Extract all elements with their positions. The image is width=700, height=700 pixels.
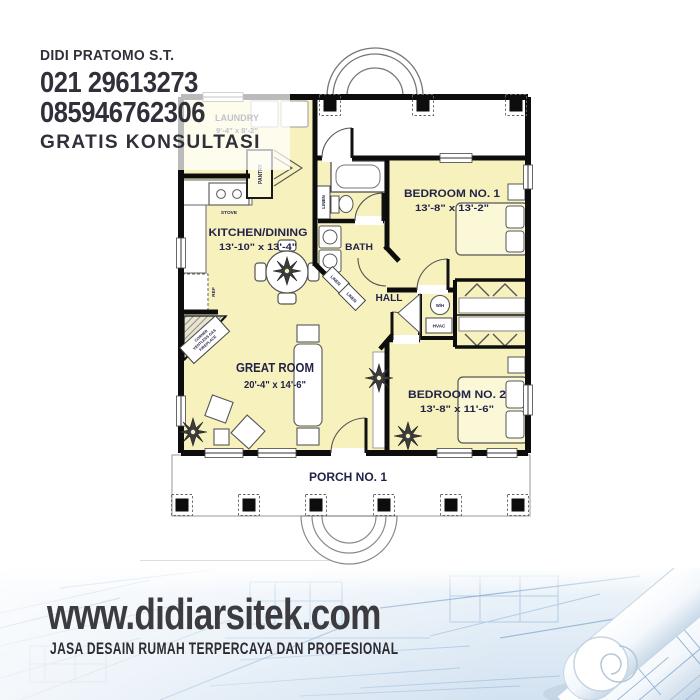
fixture-label-wh: W/H xyxy=(436,303,444,308)
room-label-porch: PORCH NO. 1 xyxy=(309,472,388,484)
room-dims-greatroom: 20'-4" x 14'-6" xyxy=(244,380,306,391)
fixture-label-stove: STOVE xyxy=(221,210,238,216)
phone-number-1: 021 29613273 xyxy=(40,69,198,98)
toilet-icon xyxy=(331,196,353,214)
plant-icon xyxy=(179,418,207,446)
plant-icon xyxy=(394,422,422,450)
fixture-label-hvac: HVAC xyxy=(433,324,446,329)
free-consultation-text: GRATIS KONSULTASI xyxy=(40,133,261,153)
fixture-label-ref: REF xyxy=(211,287,217,297)
stove-icon xyxy=(209,183,249,205)
front-arch-top xyxy=(327,48,423,96)
refrigerator-icon xyxy=(182,274,208,310)
banner: www.didiarsitek.com JASA DESAIN RUMAH TE… xyxy=(0,568,700,700)
advertisement-page: { "contact": { "name": "DIDI PRATOMO S.T… xyxy=(0,0,700,700)
website-url: www.didiarsitek.com xyxy=(47,593,381,637)
phone-number-2: 085946762306 xyxy=(40,99,205,128)
contact-block: DIDI PRATOMO S.T. 021 29613273 085946762… xyxy=(22,36,290,170)
bathtub-icon xyxy=(331,161,385,192)
room-label-bedroom1: BEDROOM NO. 1 xyxy=(404,188,500,200)
porch-slab xyxy=(172,455,530,516)
room-label-bedroom2: BEDROOM NO. 2 xyxy=(408,389,506,401)
room-label-bath: BATH xyxy=(345,242,373,253)
plant-icon xyxy=(273,257,301,285)
architect-name: DIDI PRATOMO S.T. xyxy=(40,49,174,64)
plant-icon xyxy=(365,364,393,392)
banner-tagline: JASA DESAIN RUMAH TERPERCAYA DAN PROFESI… xyxy=(50,640,398,657)
room-dims-bedroom2: 13'-8" x 11'-6" xyxy=(420,404,494,414)
room-label-kitchen: KITCHEN/DINING xyxy=(209,227,308,239)
fixture-label-linen-1: LINEN xyxy=(321,195,326,209)
room-dims-bedroom1: 13'-8" x 13'-2" xyxy=(415,203,489,213)
room-label-greatroom: GREAT ROOM xyxy=(236,361,314,375)
entry-steps-arc xyxy=(301,516,397,564)
room-label-hall: HALL xyxy=(376,292,404,304)
room-dims-kitchen: 13'-10" x 13'-4" xyxy=(219,242,297,252)
